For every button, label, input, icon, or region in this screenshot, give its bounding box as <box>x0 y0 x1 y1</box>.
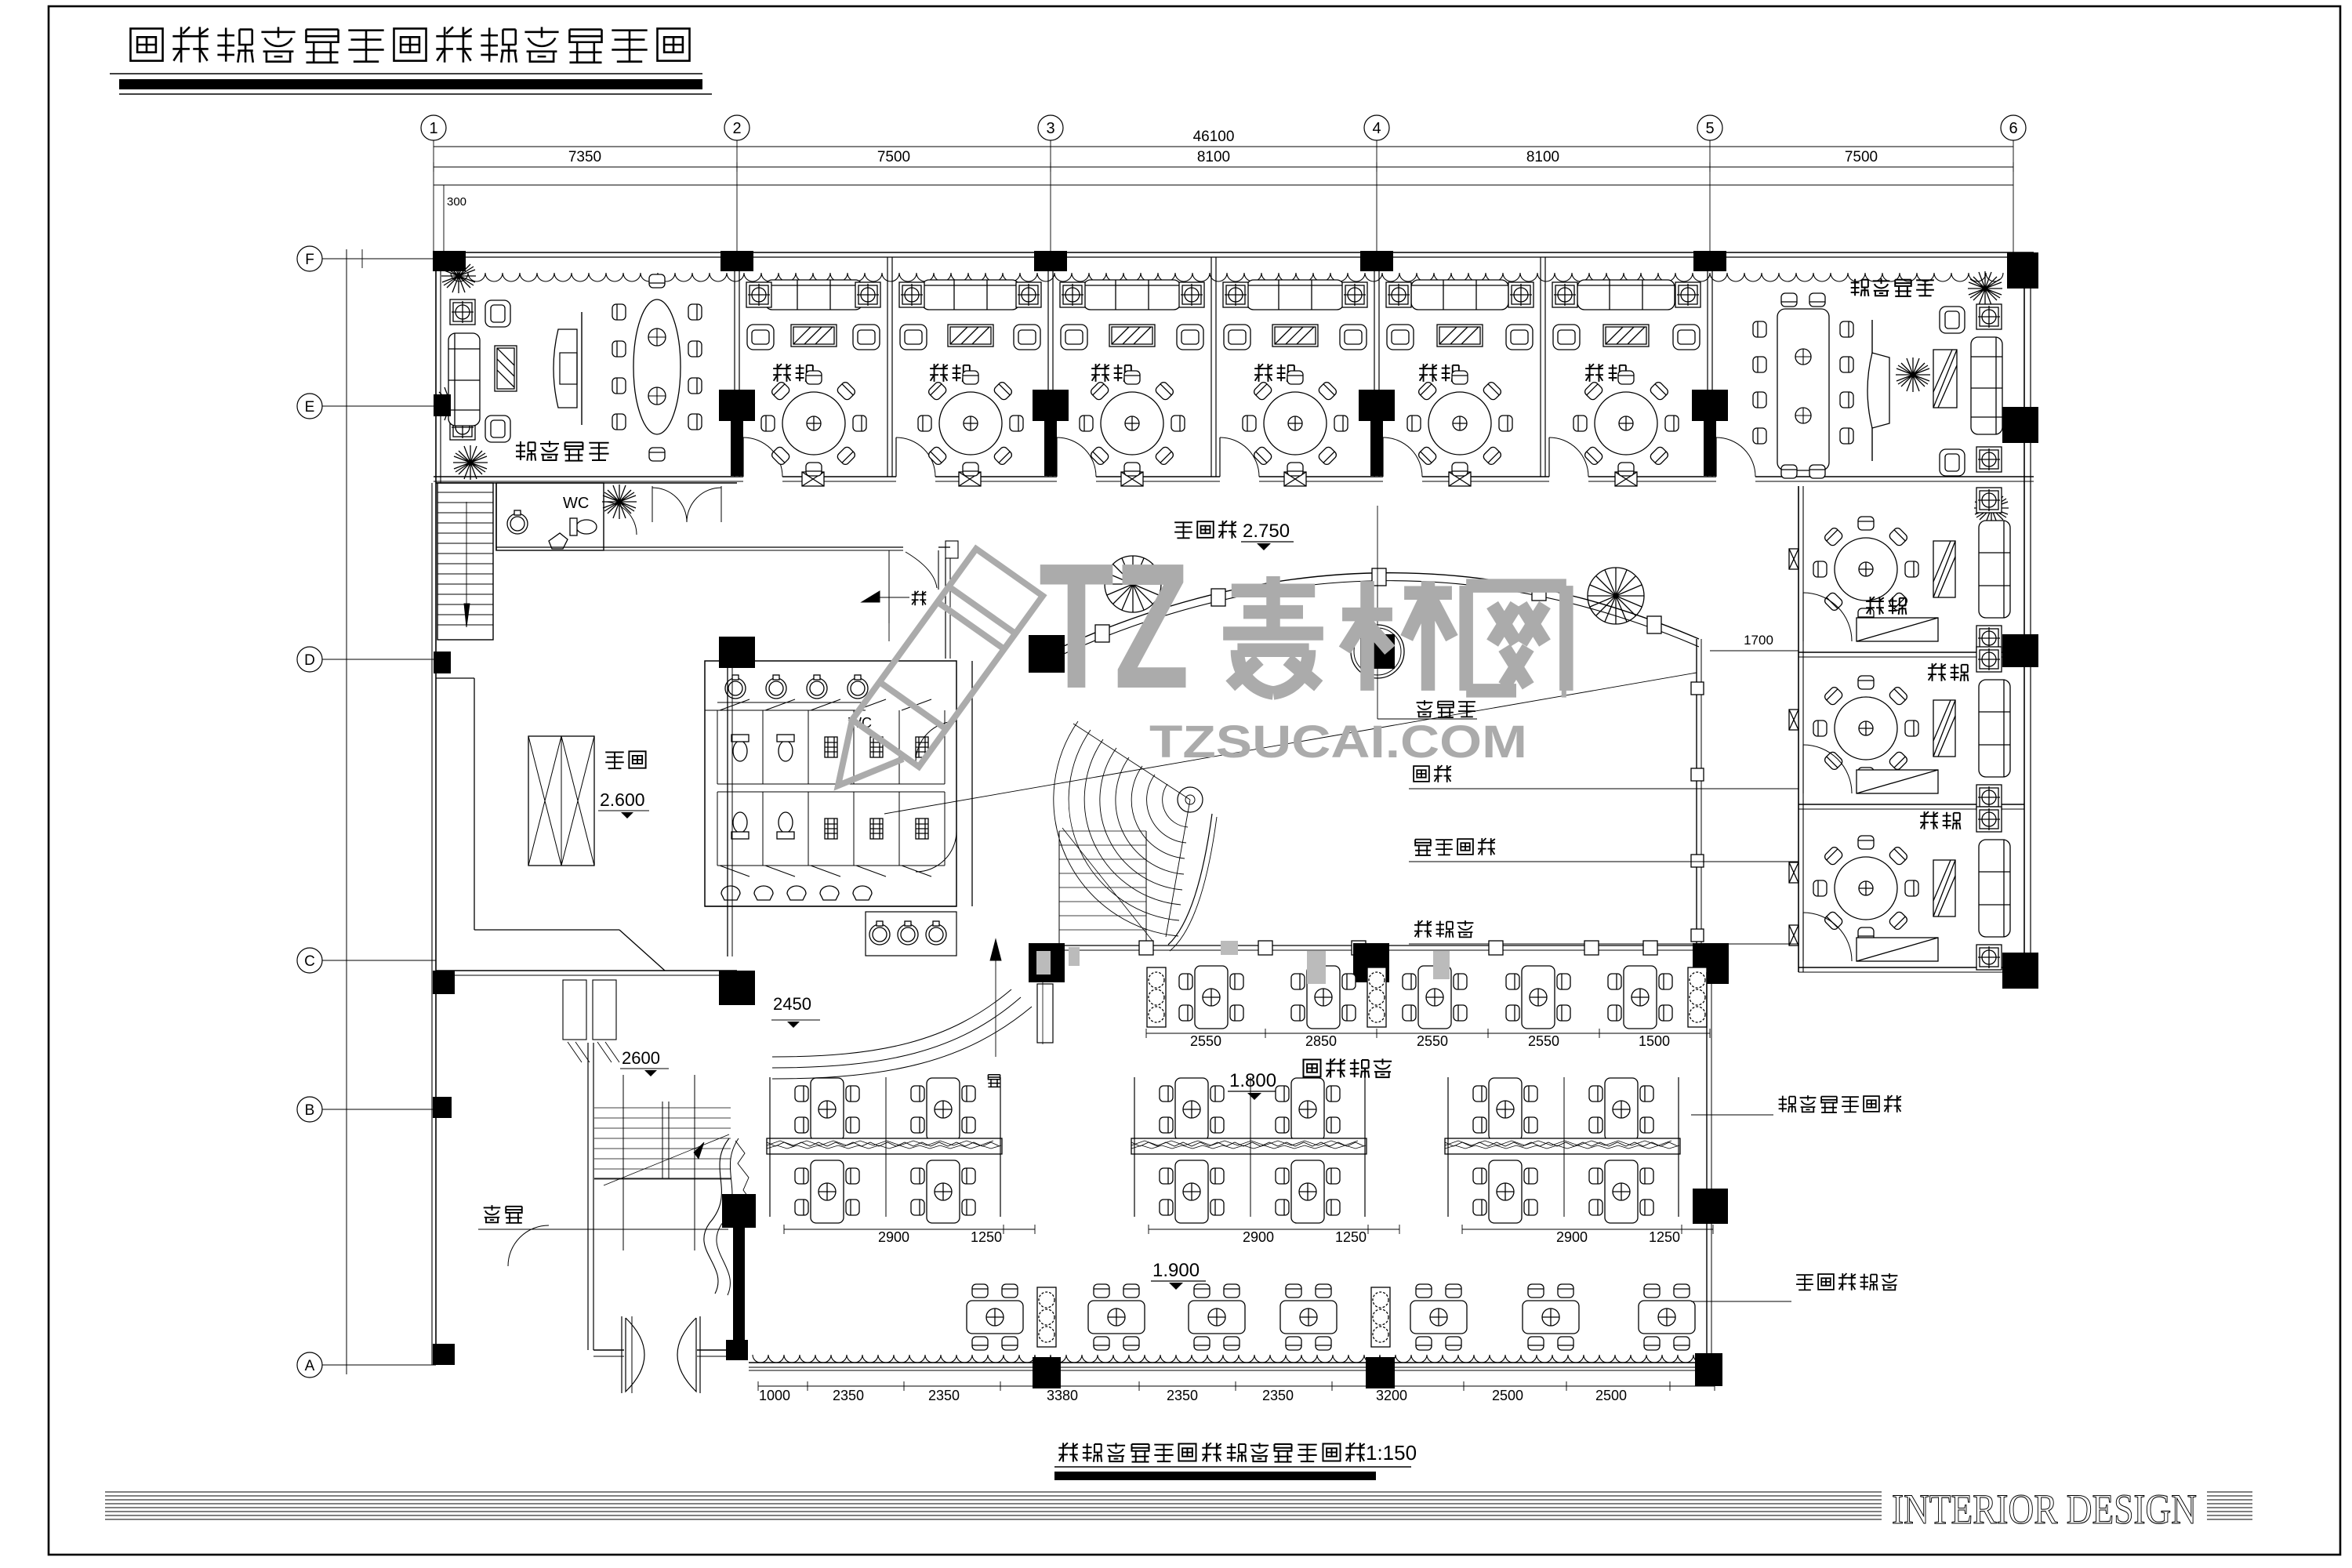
svg-text:E: E <box>305 399 315 416</box>
svg-text:3380: 3380 <box>1047 1388 1078 1403</box>
svg-text:2900: 2900 <box>1556 1229 1588 1245</box>
svg-text:7500: 7500 <box>1845 149 1878 165</box>
svg-text:1250: 1250 <box>1335 1229 1367 1245</box>
svg-text:2350: 2350 <box>1167 1388 1198 1403</box>
svg-text:2: 2 <box>732 120 741 137</box>
svg-text:2550: 2550 <box>1190 1033 1221 1049</box>
svg-text:2.750: 2.750 <box>1243 521 1290 542</box>
svg-text:8100: 8100 <box>1526 149 1559 165</box>
svg-text:F: F <box>305 252 314 268</box>
svg-text:D: D <box>304 652 315 669</box>
svg-text:1250: 1250 <box>1649 1229 1680 1245</box>
svg-text:2450: 2450 <box>773 994 811 1014</box>
svg-text:46100: 46100 <box>1193 129 1235 145</box>
svg-text:2850: 2850 <box>1305 1033 1337 1049</box>
svg-text:INTERIOR DESIGN: INTERIOR DESIGN <box>1892 1486 2197 1533</box>
svg-text:1250: 1250 <box>971 1229 1002 1245</box>
svg-text:2550: 2550 <box>1528 1033 1559 1049</box>
svg-text:2600: 2600 <box>622 1048 660 1068</box>
svg-text:7350: 7350 <box>568 149 601 165</box>
svg-text:300: 300 <box>447 195 466 209</box>
svg-text:2.600: 2.600 <box>600 789 645 810</box>
svg-text:4: 4 <box>1372 120 1381 137</box>
svg-text:6: 6 <box>2009 120 2017 137</box>
svg-text:WC: WC <box>563 495 589 512</box>
svg-text:2350: 2350 <box>928 1388 960 1403</box>
svg-text:3200: 3200 <box>1376 1388 1407 1403</box>
svg-text:1: 1 <box>429 120 437 137</box>
svg-text:2500: 2500 <box>1492 1388 1523 1403</box>
svg-text:A: A <box>305 1358 315 1374</box>
svg-text:1000: 1000 <box>759 1388 790 1403</box>
svg-text:1.800: 1.800 <box>1229 1070 1276 1091</box>
svg-text:2900: 2900 <box>878 1229 909 1245</box>
svg-text:5: 5 <box>1705 120 1714 137</box>
svg-text:TZ: TZ <box>1039 527 1189 726</box>
svg-text:2900: 2900 <box>1243 1229 1274 1245</box>
svg-text:1700: 1700 <box>1744 633 1773 648</box>
svg-text:1500: 1500 <box>1639 1033 1670 1049</box>
svg-text:2500: 2500 <box>1595 1388 1627 1403</box>
svg-text:2350: 2350 <box>833 1388 864 1403</box>
svg-text:1.900: 1.900 <box>1152 1260 1200 1281</box>
svg-text:7500: 7500 <box>877 149 910 165</box>
svg-text:B: B <box>305 1102 315 1119</box>
svg-text:1:150: 1:150 <box>1366 1441 1417 1465</box>
svg-text:C: C <box>304 953 315 970</box>
svg-text:3: 3 <box>1046 120 1054 137</box>
svg-text:2550: 2550 <box>1417 1033 1448 1049</box>
svg-text:TZSUCAI.COM: TZSUCAI.COM <box>1149 717 1527 768</box>
svg-text:2350: 2350 <box>1262 1388 1294 1403</box>
svg-text:8100: 8100 <box>1197 149 1230 165</box>
